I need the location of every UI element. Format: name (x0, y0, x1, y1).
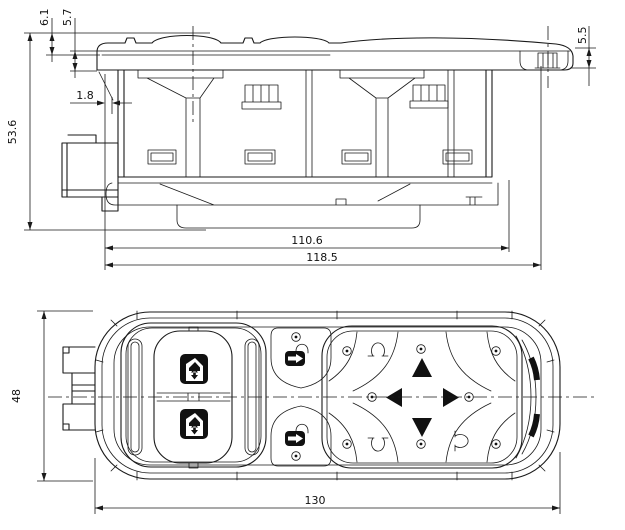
dimension-6-1: 6.1 (38, 9, 55, 63)
dim-110-6-label: 110.6 (291, 234, 323, 247)
switch-technical-drawing: 53.6 6.1 5.7 5.5 1.8 (0, 0, 625, 530)
side-latch-windows (148, 150, 472, 164)
dim-1-8-label: 1.8 (76, 89, 94, 102)
mirror-adjust-down-arrow[interactable] (412, 418, 432, 437)
side-chamfer-line (99, 72, 113, 100)
dim-5-7-label: 5.7 (61, 9, 74, 27)
screw-boss (292, 333, 301, 342)
side-cap-inner-lines (102, 51, 570, 55)
plan-dimensions: 48 130 (10, 311, 560, 514)
dimension-130: 130 (95, 494, 560, 511)
screw-boss (417, 440, 426, 449)
window-switch-island (121, 323, 266, 468)
dimension-118-5: 118.5 (105, 251, 541, 268)
side-dimensions: 53.6 6.1 5.7 5.5 1.8 (6, 9, 596, 271)
screw-boss (343, 347, 352, 356)
dimension-48: 48 (10, 311, 47, 481)
side-stem-lines (306, 70, 454, 177)
dim-118-5-label: 118.5 (306, 251, 338, 264)
screw-boss (292, 452, 301, 461)
screw-boss (417, 345, 426, 354)
mirror-select-bottom-icon (368, 438, 388, 451)
door-lock-top-icon[interactable] (285, 344, 308, 366)
side-connector (62, 135, 118, 211)
side-elevation-view: 53.6 6.1 5.7 5.5 1.8 (6, 9, 596, 271)
window-island-inner (126, 328, 261, 462)
dimension-110-6: 110.6 (105, 234, 509, 251)
dim-1-8-arrows (97, 101, 120, 106)
mirror-adjust-left-arrow[interactable] (386, 388, 402, 407)
screw-boss (492, 440, 501, 449)
screw-boss (343, 440, 352, 449)
side-body-outline (118, 70, 492, 177)
side-tray (106, 183, 498, 205)
dim-5-5-label: 5.5 (576, 27, 589, 45)
plan-outer-outline (95, 312, 560, 479)
dimension-53-6: 53.6 (6, 33, 33, 230)
side-cap-outline (97, 36, 573, 71)
plan-rim-inner-line (102, 318, 553, 473)
dim-48-label: 48 (10, 389, 23, 403)
plan-connector (63, 347, 95, 430)
window-rocker-split (157, 327, 230, 468)
mirror-adjust-right-arrow[interactable] (443, 388, 459, 407)
dim-6-1-label: 6.1 (38, 9, 51, 27)
dim-130-label: 130 (305, 494, 326, 507)
side-clip-pocket (520, 51, 568, 70)
side-ratchet-right (410, 85, 448, 108)
mirror-fold-icon (455, 431, 468, 451)
plan-face-plate (114, 327, 541, 465)
window-lift-front-icon (180, 354, 208, 384)
dim-53-6-label: 53.6 (6, 120, 19, 145)
dimension-5-7: 5.7 (61, 9, 78, 79)
window-lift-rear-icon (180, 409, 208, 439)
mirror-select-top-icon (368, 343, 388, 356)
drawing-canvas: 53.6 6.1 5.7 5.5 1.8 (0, 0, 625, 530)
dimension-1-8: 1.8 (70, 89, 132, 106)
dimension-5-5: 5.5 (576, 26, 592, 86)
screw-boss (492, 347, 501, 356)
dim-extension-lines-plan (37, 311, 560, 514)
side-ratchet-left (242, 85, 281, 109)
door-lock-bottom-icon[interactable] (285, 424, 308, 446)
side-skirt (177, 205, 420, 228)
window-island-outline (121, 323, 266, 467)
top-plan-view: 48 130 (10, 311, 594, 514)
mirror-adjust-up-arrow[interactable] (412, 358, 432, 377)
